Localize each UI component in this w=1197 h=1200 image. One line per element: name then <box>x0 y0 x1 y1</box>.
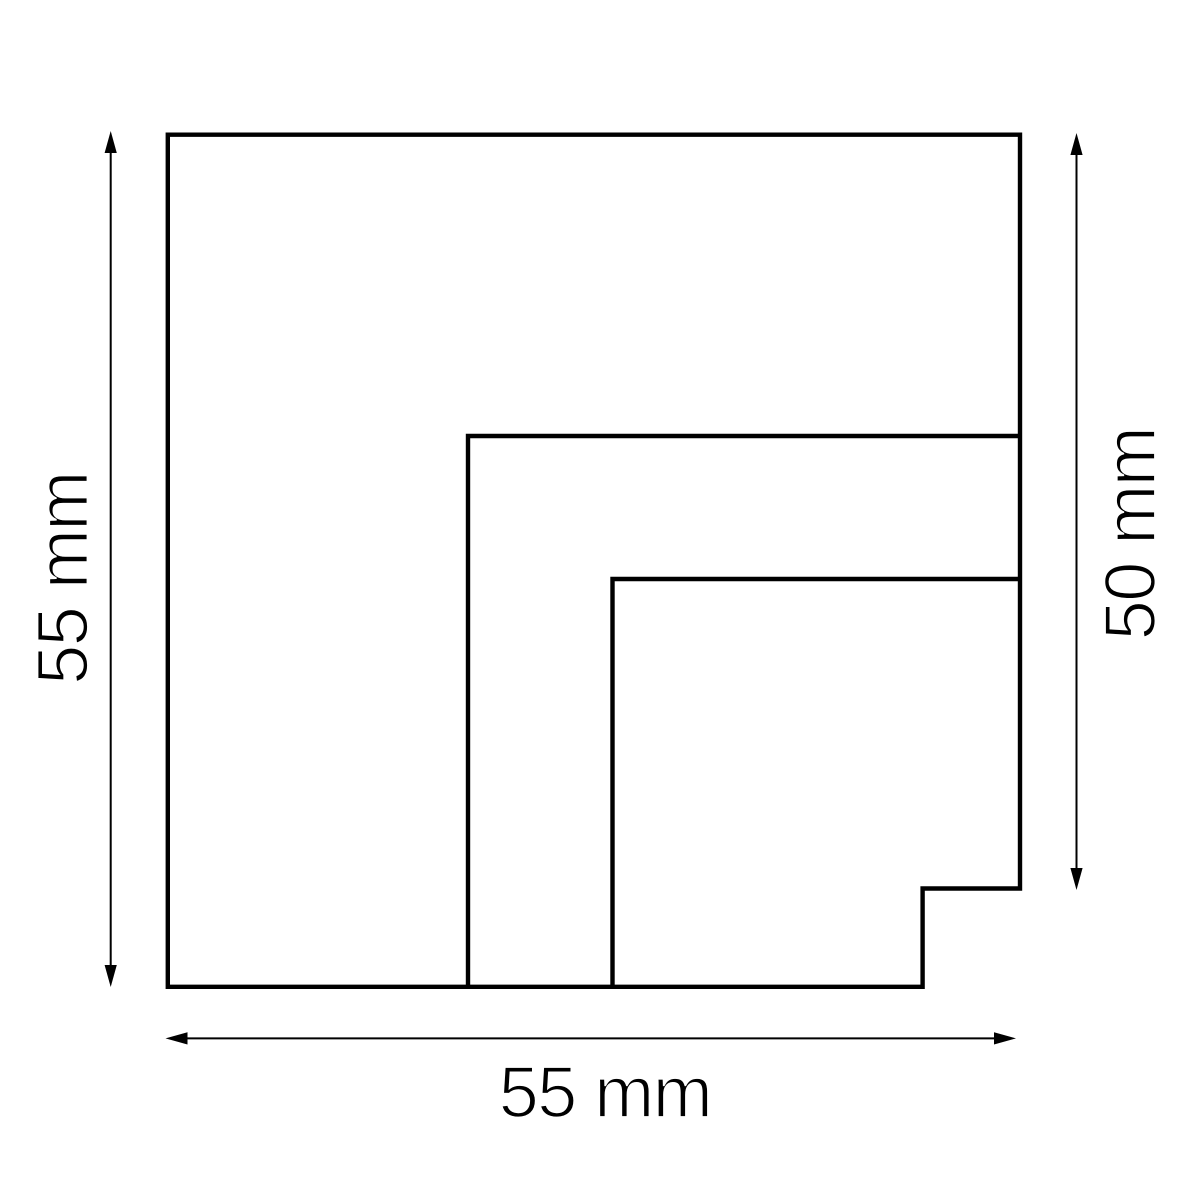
svg-text:55 mm: 55 mm <box>499 1053 712 1133</box>
svg-text:55 mm: 55 mm <box>24 472 104 685</box>
svg-text:50 mm: 50 mm <box>1091 428 1171 641</box>
